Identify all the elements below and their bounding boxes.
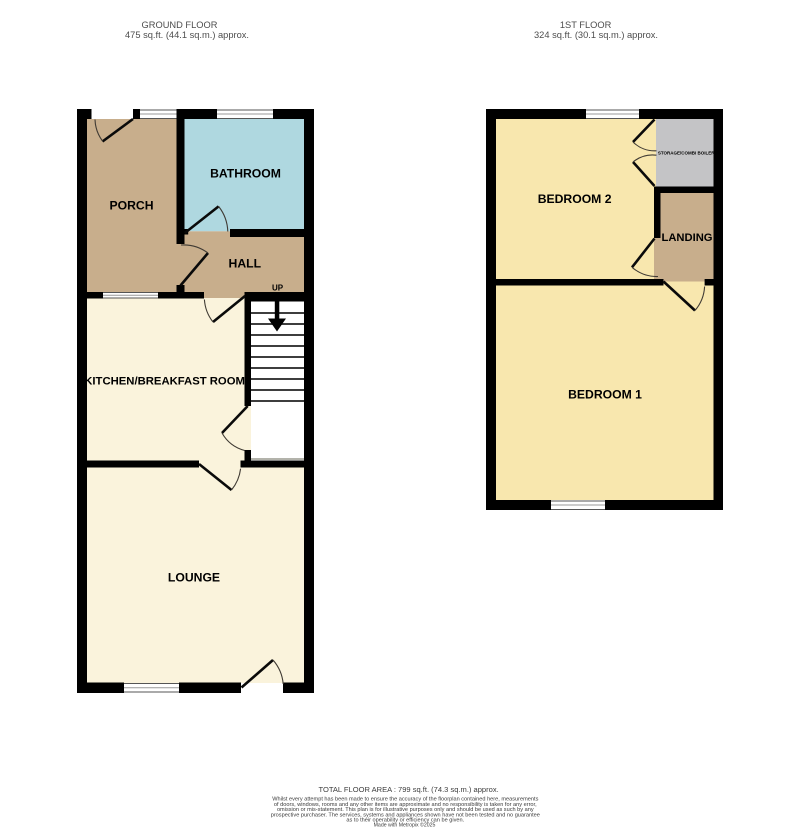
svg-text:TOTAL FLOOR AREA : 799 sq.ft.: TOTAL FLOOR AREA : 799 sq.ft. (74.3 sq.m… bbox=[318, 785, 498, 794]
svg-text:PORCH: PORCH bbox=[109, 199, 153, 213]
svg-text:HALL: HALL bbox=[229, 256, 262, 270]
svg-text:UP: UP bbox=[272, 284, 284, 293]
svg-text:Made with Metropix ©2025: Made with Metropix ©2025 bbox=[374, 822, 436, 829]
svg-text:BATHROOM: BATHROOM bbox=[210, 167, 281, 181]
svg-text:475 sq.ft. (44.1 sq.m.) approx: 475 sq.ft. (44.1 sq.m.) approx. bbox=[125, 30, 249, 40]
svg-text:GROUND FLOOR: GROUND FLOOR bbox=[142, 20, 218, 30]
svg-text:STORAGE/COMBI BOILER: STORAGE/COMBI BOILER bbox=[658, 150, 715, 155]
svg-text:BEDROOM 1: BEDROOM 1 bbox=[568, 387, 642, 401]
svg-text:324 sq.ft. (30.1 sq.m.) approx: 324 sq.ft. (30.1 sq.m.) approx. bbox=[534, 30, 658, 40]
svg-text:BEDROOM 2: BEDROOM 2 bbox=[538, 192, 612, 206]
svg-text:KITCHEN/BREAKFAST ROOM: KITCHEN/BREAKFAST ROOM bbox=[84, 376, 245, 388]
svg-text:1ST FLOOR: 1ST FLOOR bbox=[560, 20, 612, 30]
svg-text:LANDING: LANDING bbox=[662, 232, 713, 244]
svg-text:LOUNGE: LOUNGE bbox=[168, 571, 220, 585]
